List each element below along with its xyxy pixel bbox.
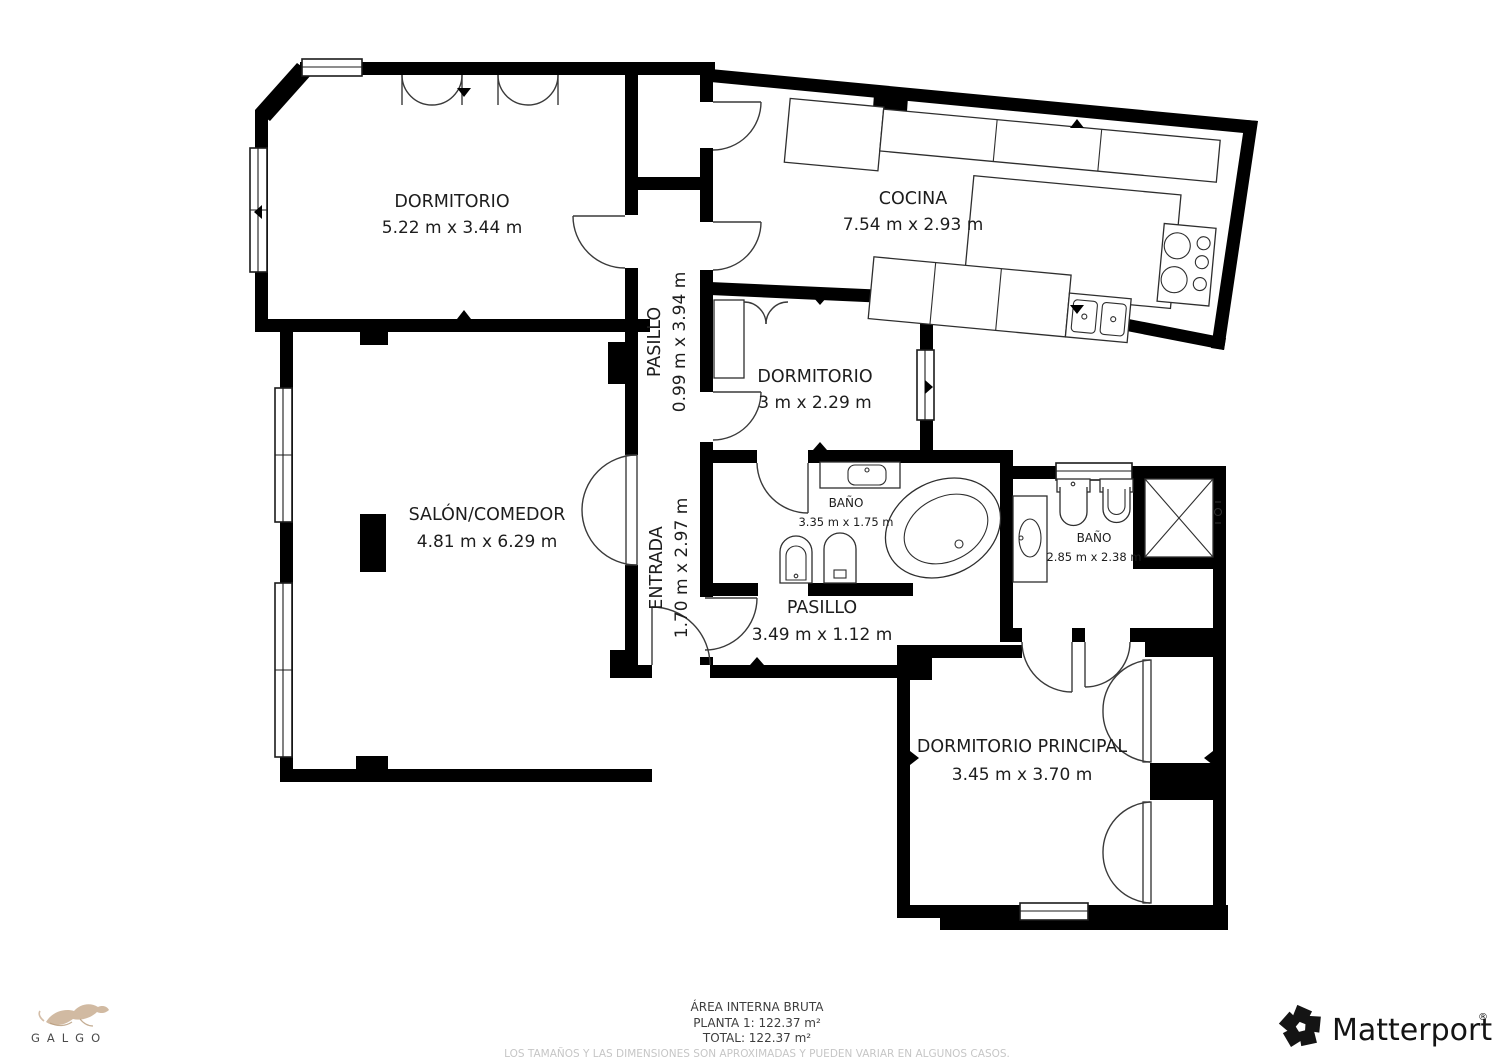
label-dormitorio-principal: DORMITORIO PRINCIPAL [917, 737, 1128, 757]
floorplan-page: DORMITORIO 5.22 m x 3.44 m COCINA 7.54 m… [0, 0, 1500, 1061]
dims-dormitorio-centro: 3 m x 2.29 m [758, 393, 871, 413]
stove [1157, 224, 1216, 306]
label-dormitorio-centro: DORMITORIO [757, 367, 872, 387]
dims-salon: 4.81 m x 6.29 m [417, 532, 558, 552]
vanity-sink-east [1013, 496, 1047, 582]
kitchen-sink [1065, 293, 1131, 343]
toilet-icon [780, 536, 812, 583]
dims-pasillo-sur: 3.49 m x 1.12 m [752, 625, 893, 645]
window-salon-left-1 [275, 388, 292, 522]
fridge [784, 98, 884, 170]
footer-total-line: TOTAL: 122.37 m² [702, 1031, 811, 1045]
window-bano-este-top [1056, 463, 1132, 480]
matterport-registered-mark: ® [1478, 1012, 1488, 1023]
window-dormitorio-top [302, 59, 362, 76]
dims-cocina: 7.54 m x 2.93 m [843, 215, 984, 235]
label-pasillo-sur: PASILLO [787, 598, 857, 618]
footer-planta-line: PLANTA 1: 122.37 m² [693, 1016, 821, 1030]
galgo-wordmark: GALGO [31, 1031, 107, 1045]
label-entrada: ENTRADA [647, 526, 667, 609]
bidet-icon [824, 533, 856, 583]
label-pasillo-norte: PASILLO [645, 307, 665, 377]
label-bano-este: BAÑO [1077, 530, 1112, 545]
dims-dormitorio: 5.22 m x 3.44 m [382, 218, 523, 238]
label-dormitorio: DORMITORIO [394, 192, 509, 212]
dims-bano-centro: 3.35 m x 1.75 m [798, 515, 893, 529]
salon-column [360, 514, 386, 572]
dims-bano-este: 2.85 m x 2.38 m [1046, 550, 1141, 564]
dims-pasillo-norte: 0.99 m x 3.94 m [670, 272, 690, 413]
dims-entrada: 1.70 m x 2.97 m [672, 498, 692, 639]
label-bano-centro: BAÑO [829, 495, 864, 510]
vanity-sink [820, 462, 900, 488]
shower [1145, 479, 1222, 557]
label-cocina: COCINA [879, 189, 947, 209]
window-salon-left-2 [275, 583, 292, 757]
matterport-wordmark: Matterport [1332, 1013, 1492, 1048]
bidet-icon-east [1100, 479, 1133, 523]
footer-area-title: ÁREA INTERNA BRUTA [691, 999, 825, 1014]
dims-dormitorio-principal: 3.45 m x 3.70 m [952, 765, 1093, 785]
label-salon: SALÓN/COMEDOR [409, 503, 566, 525]
toilet-icon-east [1057, 479, 1090, 526]
floor-plan-image: DORMITORIO 5.22 m x 3.44 m COCINA 7.54 m… [0, 0, 1500, 1061]
window-dormitorio-principal-bottom [1020, 903, 1088, 920]
paper-background [0, 0, 1500, 1061]
footer-disclaimer: LOS TAMAÑOS Y LAS DIMENSIONES SON APROXI… [504, 1047, 1010, 1060]
